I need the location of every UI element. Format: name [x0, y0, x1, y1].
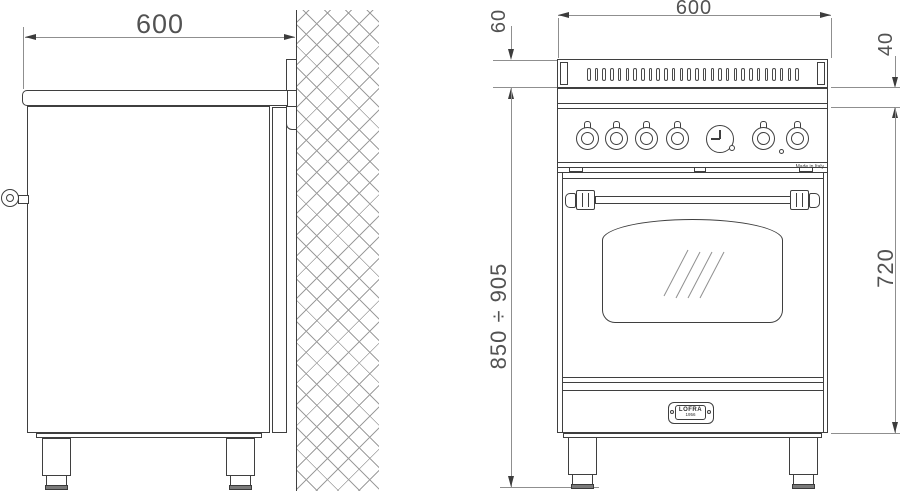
foot-upper — [226, 438, 255, 476]
knob-ring — [671, 132, 684, 145]
door-top-line — [562, 178, 823, 179]
vent-slot — [595, 68, 599, 81]
drawer-top-line — [562, 390, 823, 391]
foot-pad — [571, 484, 594, 489]
vent-slot — [788, 68, 792, 81]
worktop-side — [22, 90, 288, 106]
handle-bracket-right — [790, 190, 809, 210]
bracket-line — [582, 193, 583, 207]
foot-upper — [42, 438, 71, 476]
dim-extension-line — [23, 27, 24, 89]
badge-text: LOFRA 1956 — [676, 407, 705, 418]
dim-label-body-height: 720 — [874, 238, 898, 298]
knob-face — [752, 127, 775, 150]
panel-bottom-line — [558, 162, 827, 163]
made-in-italy-label: Made in Italy — [792, 164, 824, 170]
dim-label-side-depth: 600 — [118, 9, 202, 40]
hob-edge-line — [558, 103, 827, 104]
vent-slot — [734, 68, 738, 81]
adjustable-foot — [789, 437, 818, 490]
vent-slot — [780, 68, 784, 81]
vent-slot — [656, 68, 660, 81]
arrowhead-icon — [892, 77, 898, 88]
oven-handle-side-inner — [6, 194, 14, 202]
brand-badge: LOFRA 1956 — [668, 402, 714, 424]
control-knob — [605, 121, 628, 151]
vent-slot — [687, 68, 691, 81]
backguard-bracket-right — [817, 62, 825, 85]
vent-slot — [765, 68, 769, 81]
vent-slot — [641, 68, 645, 81]
badge-screw — [707, 410, 711, 414]
bracket-line — [802, 193, 803, 207]
hinge-mark — [694, 167, 706, 172]
arrowhead-icon — [508, 476, 514, 487]
foot-pad — [792, 484, 815, 489]
vent-slot — [749, 68, 753, 81]
vent-slot — [649, 68, 653, 81]
panel-top-line — [558, 108, 827, 109]
wall-hatch — [296, 10, 379, 491]
vent-slot — [726, 68, 730, 81]
knob-face — [576, 127, 599, 150]
bracket-line — [796, 193, 797, 207]
handle-end-cap-right — [809, 193, 820, 208]
control-knob — [576, 121, 599, 151]
adjustable-foot — [226, 438, 255, 491]
badge-screw — [670, 410, 674, 414]
vent-slot — [795, 68, 799, 81]
cooker-body-side — [27, 106, 270, 433]
timer-knob — [729, 145, 735, 151]
dim-extension-line — [831, 433, 900, 434]
knob-ring — [640, 132, 653, 145]
door-edge-left — [562, 172, 563, 433]
knob-face — [605, 127, 628, 150]
control-knob — [786, 121, 809, 151]
dim-label-front-width: 600 — [664, 0, 724, 20]
vent-slot — [626, 68, 630, 81]
vent-slot — [711, 68, 715, 81]
vent-slot — [680, 68, 684, 81]
control-knob — [635, 121, 658, 151]
vent-slot — [718, 68, 722, 81]
control-knob — [666, 121, 689, 151]
dim-extension-line — [831, 107, 900, 108]
technical-drawing: 600 600 — [0, 0, 900, 500]
dim-label-trim-height: 40 — [875, 27, 897, 61]
dim-extension-line — [493, 87, 557, 88]
foot-upper — [789, 437, 818, 475]
indicator-light — [779, 149, 784, 154]
vent-slot — [695, 68, 699, 81]
hinge-mark — [569, 167, 583, 172]
backguard-side-profile — [286, 59, 297, 91]
knob-ring — [791, 132, 804, 145]
back-panel-side — [272, 107, 287, 433]
adjustable-foot — [568, 437, 597, 490]
vent-slot — [664, 68, 668, 81]
dim-label-backguard-height: 60 — [488, 4, 510, 38]
knob-ring — [581, 132, 594, 145]
handle-bracket-left — [576, 190, 595, 210]
foot-upper — [568, 437, 597, 475]
badge-year: 1956 — [676, 413, 705, 418]
bracket-line — [588, 193, 589, 207]
handle-end-cap-left — [565, 193, 576, 208]
knob-face — [666, 127, 689, 150]
dim-extension-line — [558, 18, 559, 58]
dim-extension-line — [831, 87, 900, 88]
vent-slot — [633, 68, 637, 81]
trim-line — [558, 167, 827, 168]
vent-slot-row — [587, 67, 799, 81]
vent-slot — [587, 68, 591, 81]
vent-slot — [602, 68, 606, 81]
foot-pad — [229, 485, 252, 490]
vent-slot — [618, 68, 622, 81]
vent-slot — [610, 68, 614, 81]
door-bottom-line — [562, 377, 823, 378]
arrowhead-icon — [284, 34, 295, 40]
vent-slot — [772, 68, 776, 81]
handle-stem-side — [18, 195, 29, 204]
vent-slot — [703, 68, 707, 81]
backguard-bracket-left — [560, 62, 568, 85]
vent-channel-side — [286, 106, 297, 130]
dim-line — [511, 26, 512, 50]
dim-label-overall-height: 850 ÷ 905 — [487, 241, 511, 391]
knob-face — [635, 127, 658, 150]
door-handle-bar — [595, 196, 791, 204]
window-reflection-lines — [660, 244, 734, 302]
dim-extension-line — [493, 60, 557, 61]
arrowhead-icon — [508, 49, 514, 60]
door-edge-right — [823, 172, 824, 433]
arrowhead-icon — [25, 34, 36, 40]
arrowhead-icon — [892, 422, 898, 433]
vent-slot — [757, 68, 761, 81]
knob-face — [786, 127, 809, 150]
badge-plate: LOFRA 1956 — [675, 405, 706, 420]
door-bottom-line — [562, 382, 823, 383]
foot-pad — [45, 485, 68, 490]
dim-extension-line — [831, 18, 832, 58]
knob-ring — [610, 132, 623, 145]
dim-line — [895, 56, 896, 77]
vent-slot — [672, 68, 676, 81]
plinth-front — [563, 433, 822, 438]
trim-line — [558, 172, 827, 173]
arrowhead-icon — [558, 12, 569, 18]
adjustable-foot — [42, 438, 71, 491]
vent-slot — [741, 68, 745, 81]
clock-hour-hand — [711, 138, 720, 140]
knob-ring — [757, 132, 770, 145]
control-knob — [752, 121, 775, 151]
arrowhead-icon — [820, 12, 831, 18]
